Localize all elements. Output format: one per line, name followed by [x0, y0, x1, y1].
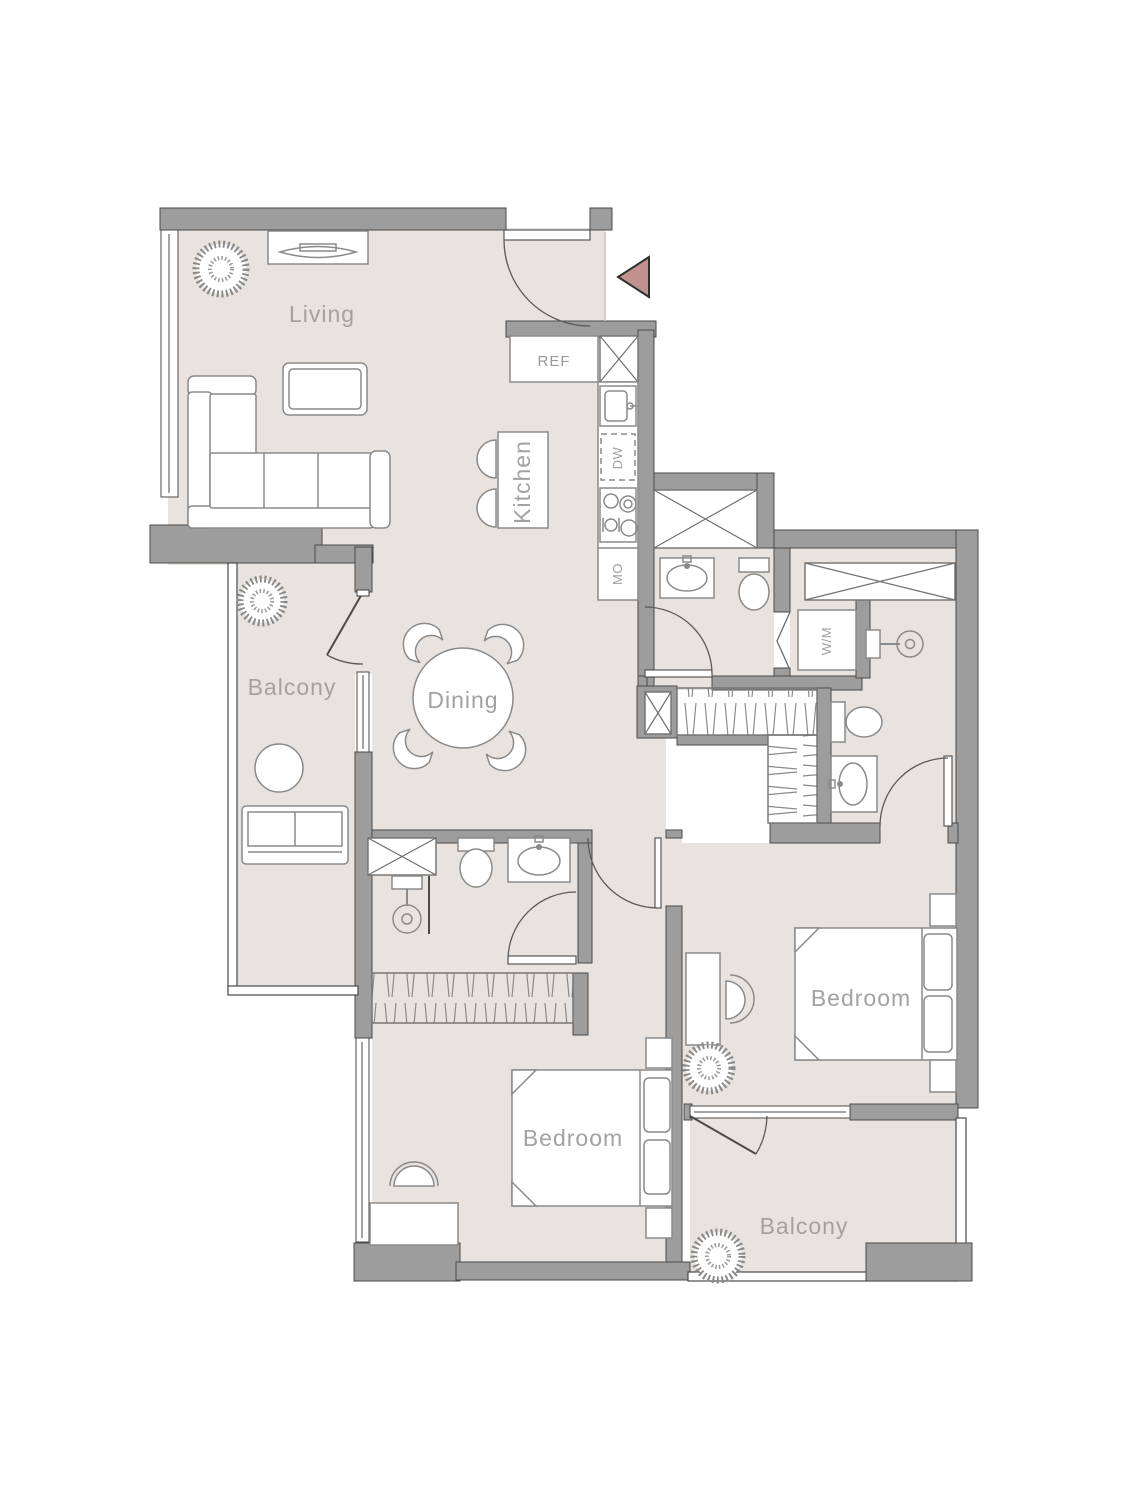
shaft-hall — [645, 692, 671, 734]
plant-bedroom-right-icon — [686, 1045, 732, 1091]
wall-ensuite-bottom — [770, 823, 880, 843]
balcony-bottom-block — [866, 1243, 972, 1281]
wall-bedroom-right-top-stub — [666, 830, 682, 838]
bath2-toilet — [458, 838, 494, 887]
shaft-bath2 — [368, 838, 436, 875]
wall-bath2-right — [578, 843, 592, 963]
balcony-bottom-wall-right — [956, 1118, 966, 1250]
tv-unit — [268, 231, 368, 264]
label-washing-machine: W/M — [819, 627, 834, 655]
desk-right — [686, 953, 720, 1045]
floor-shower-strip — [862, 676, 956, 690]
wall-under-closet-band — [677, 735, 768, 745]
balcony-table — [255, 744, 303, 792]
wall-wardrobe2-stub — [573, 973, 588, 1035]
nightstand-left-top — [646, 1038, 672, 1068]
desk-left — [370, 1203, 458, 1245]
balcony-bench — [242, 806, 348, 864]
closet-top-right — [805, 563, 955, 600]
wall-top-right — [774, 530, 956, 548]
floor-plan-drawing: Living Kitchen Dining Balcony Bedroom Be… — [0, 0, 1128, 1500]
window-living-left — [161, 230, 178, 497]
label-bedroom-left: Bedroom — [523, 1125, 623, 1151]
floor-ensuite-doorway — [878, 823, 950, 843]
wall-bottom-left-block — [354, 1243, 460, 1281]
bath2-sink — [508, 836, 570, 882]
label-refrigerator: REF — [538, 353, 571, 370]
nightstand-right-bottom — [930, 1060, 956, 1092]
window-balcony-bottom-slider — [690, 1106, 850, 1118]
label-dining: Dining — [427, 687, 498, 713]
walkin-closet-band-side — [768, 735, 817, 823]
wall-bedroom-left-bottom — [456, 1262, 690, 1280]
label-balcony-bottom: Balcony — [760, 1213, 849, 1239]
wall-powder-wm-a — [774, 548, 790, 612]
wall-outer-right — [956, 530, 978, 1108]
nightstand-right-top — [930, 894, 956, 926]
balcony-left-wall-outer — [228, 563, 237, 993]
plant-balcony-left-icon — [240, 579, 284, 623]
wall-living-bottom-band — [150, 525, 322, 563]
wall-top — [160, 208, 506, 230]
label-balcony-left: Balcony — [248, 674, 337, 700]
label-kitchen: Kitchen — [509, 440, 535, 524]
label-microwave: MO — [610, 563, 625, 585]
label-dishwasher: DW — [610, 446, 625, 469]
plant-balcony-bottom-icon — [694, 1232, 742, 1280]
wall-kitchen-right — [638, 330, 654, 690]
wall-top-entry-stub — [590, 208, 612, 230]
label-living: Living — [289, 301, 355, 327]
powder-toilet — [739, 558, 769, 610]
entry-arrow-icon — [618, 257, 649, 297]
wardrobe-bedroom-left — [372, 973, 573, 1023]
shaft-entry — [600, 336, 638, 382]
ensuite-sink — [829, 756, 877, 812]
wall-closet-right — [817, 688, 831, 823]
wall-shaft-top — [654, 473, 757, 490]
label-bedroom-right: Bedroom — [811, 985, 911, 1011]
wm-bifold-door — [777, 612, 790, 670]
window-balcony-left-fixed — [357, 672, 369, 752]
wall-shaft-right — [757, 473, 774, 548]
window-bedroom-left — [356, 1038, 369, 1242]
nightstand-left-bottom — [646, 1208, 672, 1238]
wall-above-ref — [506, 321, 656, 337]
wall-balcony-dining-top — [355, 547, 372, 592]
floor-plan: Living Kitchen Dining Balcony Bedroom Be… — [0, 0, 1128, 1500]
wall-bedroom-right-bottom — [850, 1104, 958, 1120]
shaft-main — [654, 490, 757, 548]
plant-living-icon — [196, 244, 246, 294]
coffee-table — [283, 363, 367, 415]
walkin-closet-band-top — [677, 688, 817, 735]
balcony-left-wall-bottom — [228, 986, 358, 995]
powder-sink — [660, 556, 714, 598]
